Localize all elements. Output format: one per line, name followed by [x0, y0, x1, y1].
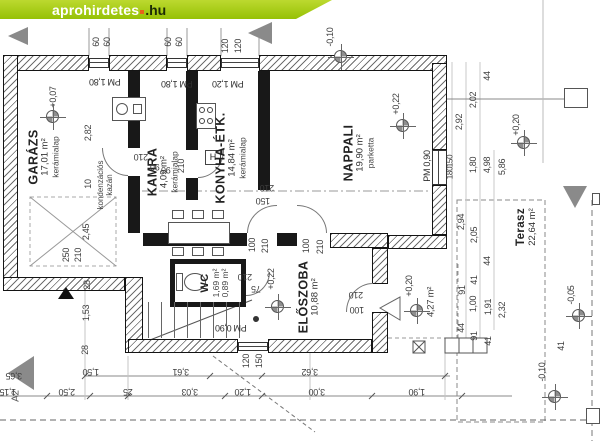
- room-label-wc: WC 1,69 m² 0,89 m²: [199, 269, 231, 298]
- chair-icon: [212, 247, 224, 256]
- door-dim: 90: [161, 165, 170, 175]
- stair-post: [253, 316, 259, 322]
- wall: [432, 185, 447, 235]
- wall: [258, 71, 270, 190]
- pm-label: PM 1,20: [212, 79, 243, 89]
- wall: [128, 339, 238, 353]
- dim-label: 3,00: [309, 387, 325, 397]
- elevation-symbol: [572, 309, 585, 322]
- door-dim: 120: [241, 354, 251, 368]
- entry-arrow-icon: [58, 287, 74, 299]
- section-marker-icon: [563, 186, 587, 208]
- dim-label: 1,20: [235, 387, 251, 397]
- elevation-symbol: [548, 390, 561, 403]
- dim-label: 180: [446, 167, 455, 179]
- dim-label: 3,62: [302, 367, 318, 377]
- section-marker-icon: [248, 22, 272, 44]
- dim-label: 60: [102, 37, 112, 46]
- wall: [186, 178, 198, 200]
- dim-label: 28: [80, 345, 90, 354]
- floorplan-canvas: H GARÁZS 17,01 m² kerámialap KAMRA 4,09 …: [0, 0, 600, 441]
- wall: [187, 55, 221, 71]
- wall: [330, 233, 388, 248]
- dim-label: 1,90: [409, 387, 425, 397]
- wall: [372, 312, 388, 353]
- window: [238, 342, 268, 351]
- wall: [268, 339, 372, 353]
- door-dim: 210: [315, 240, 325, 254]
- pm-label: PM 1,80: [161, 79, 192, 89]
- elevation-value: -0,05: [566, 285, 576, 304]
- door-dim: 41: [556, 341, 566, 350]
- wall: [128, 176, 140, 233]
- pm-label: PM 1,80: [89, 77, 120, 87]
- dim-label: 60: [174, 37, 184, 46]
- dim-label: 44: [456, 323, 466, 332]
- door-dim: 210: [260, 239, 270, 253]
- door-dim: 210: [176, 159, 186, 173]
- wall: [372, 248, 388, 284]
- dim-label: 3,65: [6, 371, 22, 381]
- dim-label: 1,50: [83, 367, 99, 377]
- dim-label: 91: [457, 285, 467, 294]
- chair-icon: [192, 210, 204, 219]
- elevation-symbol: [271, 300, 284, 313]
- dim-label: 2,05: [469, 227, 479, 243]
- door-dim: 100: [247, 238, 257, 252]
- pm-label: PM 0,90: [215, 323, 246, 333]
- dim-label: 10: [83, 179, 93, 188]
- watermark-brand: aprohirdetes: [52, 2, 139, 18]
- chair-icon: [172, 247, 184, 256]
- dim-label: 4,98: [482, 157, 492, 173]
- watermark-tld: .hu: [145, 2, 166, 18]
- door-dim: 150: [254, 354, 264, 368]
- elevation-value: +0,20: [511, 114, 521, 135]
- dim-label: 1,00: [468, 296, 478, 312]
- dim-label: 60: [163, 37, 173, 46]
- window: [89, 58, 109, 68]
- window: [221, 58, 259, 68]
- dim-label: 120: [220, 39, 230, 53]
- elevation-value: +0,22: [391, 93, 401, 114]
- wall: [388, 235, 447, 249]
- watermark-logo[interactable]: aprohirdetes .hu: [0, 0, 332, 19]
- dim-label: 2,94: [456, 214, 466, 230]
- toilet-tank-icon: [176, 273, 183, 291]
- door-dim: 210: [134, 152, 148, 162]
- dim-label: 1,91: [483, 299, 493, 315]
- chair-icon: [172, 210, 184, 219]
- utility-box: [592, 193, 600, 205]
- elevation-value: +0,22: [266, 268, 276, 289]
- door-dim: 100: [301, 239, 311, 253]
- dim-label: 60: [91, 37, 101, 46]
- boiler-icon: [112, 97, 146, 121]
- wall: [3, 55, 18, 291]
- dim-label: 44: [482, 71, 492, 80]
- dim-label: 28: [82, 280, 92, 289]
- door-dim: 210: [238, 272, 252, 282]
- pm-label: PM 0,90: [422, 150, 432, 181]
- dim-label: 41: [483, 336, 493, 345]
- chair-icon: [192, 247, 204, 256]
- dim-label: 3,03: [182, 387, 198, 397]
- elevation-value: +0,20: [404, 275, 414, 296]
- door-dim: 90: [150, 162, 159, 172]
- dim-label: 250: [61, 248, 71, 262]
- dim-label: 2,32: [497, 302, 507, 318]
- elevation-symbol: [410, 304, 423, 317]
- door-dim: 210: [349, 290, 363, 300]
- dim-label: 210: [73, 248, 83, 262]
- dim-label: 2,92: [454, 114, 464, 130]
- dim-label: 5,86: [497, 159, 507, 175]
- dim-label: 150: [446, 155, 455, 167]
- gas-meter-box: [564, 88, 588, 108]
- dim-label: 44: [482, 256, 492, 265]
- dim-label: 1,53: [81, 305, 91, 321]
- watermark-dot-icon: [140, 10, 144, 14]
- elevation-symbol: [46, 110, 59, 123]
- door-dim: 150: [256, 196, 270, 206]
- dim-label: 2,45: [81, 224, 91, 240]
- dim-label: 2,02: [468, 92, 478, 108]
- chair-icon: [212, 210, 224, 219]
- room-label-nappali: NAPPALI 19,90 m² parketta: [341, 125, 376, 182]
- dining-table-icon: [168, 222, 230, 244]
- boiler-note: kondenzációskazán: [96, 161, 114, 210]
- dim-label: 3,61: [173, 367, 189, 377]
- porch-area-label: 4,27 m²: [426, 287, 437, 317]
- wall: [432, 63, 447, 150]
- elevation-symbol: [334, 50, 347, 63]
- room-label-garazs: GARÁZS 17,01 m² kerámialap: [26, 129, 61, 184]
- wall: [109, 55, 167, 71]
- elevation-value: -0,10: [537, 362, 547, 381]
- room-label-konyha: KONYHA-ÉTK. 14,84 m² kerámialap: [213, 112, 248, 203]
- dim-label: 1,15: [0, 387, 16, 397]
- utility-box: [586, 408, 600, 424]
- dim-label: 25: [123, 387, 132, 397]
- dim-label: 41: [469, 275, 479, 284]
- door-dim: 75: [251, 284, 260, 294]
- dim-label: 2,50: [59, 387, 75, 397]
- door-dim: 210: [260, 183, 274, 193]
- dim-label: 91: [469, 331, 479, 340]
- window: [167, 58, 187, 68]
- room-label-eloszoba: ELŐSZOBA 10,88 m²: [296, 261, 321, 334]
- wall: [277, 233, 297, 246]
- section-marker-icon: [8, 27, 28, 45]
- door-dim: 100: [350, 305, 364, 315]
- elevation-symbol: [517, 136, 530, 149]
- dim-label: 1,80: [468, 157, 478, 173]
- room-label-terasz: Terasz 22,64 m²: [515, 208, 539, 246]
- dim-label: 120: [233, 39, 243, 53]
- dim-label: 2,82: [83, 125, 93, 141]
- elevation-symbol: [396, 119, 409, 132]
- elevation-value: -0,10: [325, 27, 335, 46]
